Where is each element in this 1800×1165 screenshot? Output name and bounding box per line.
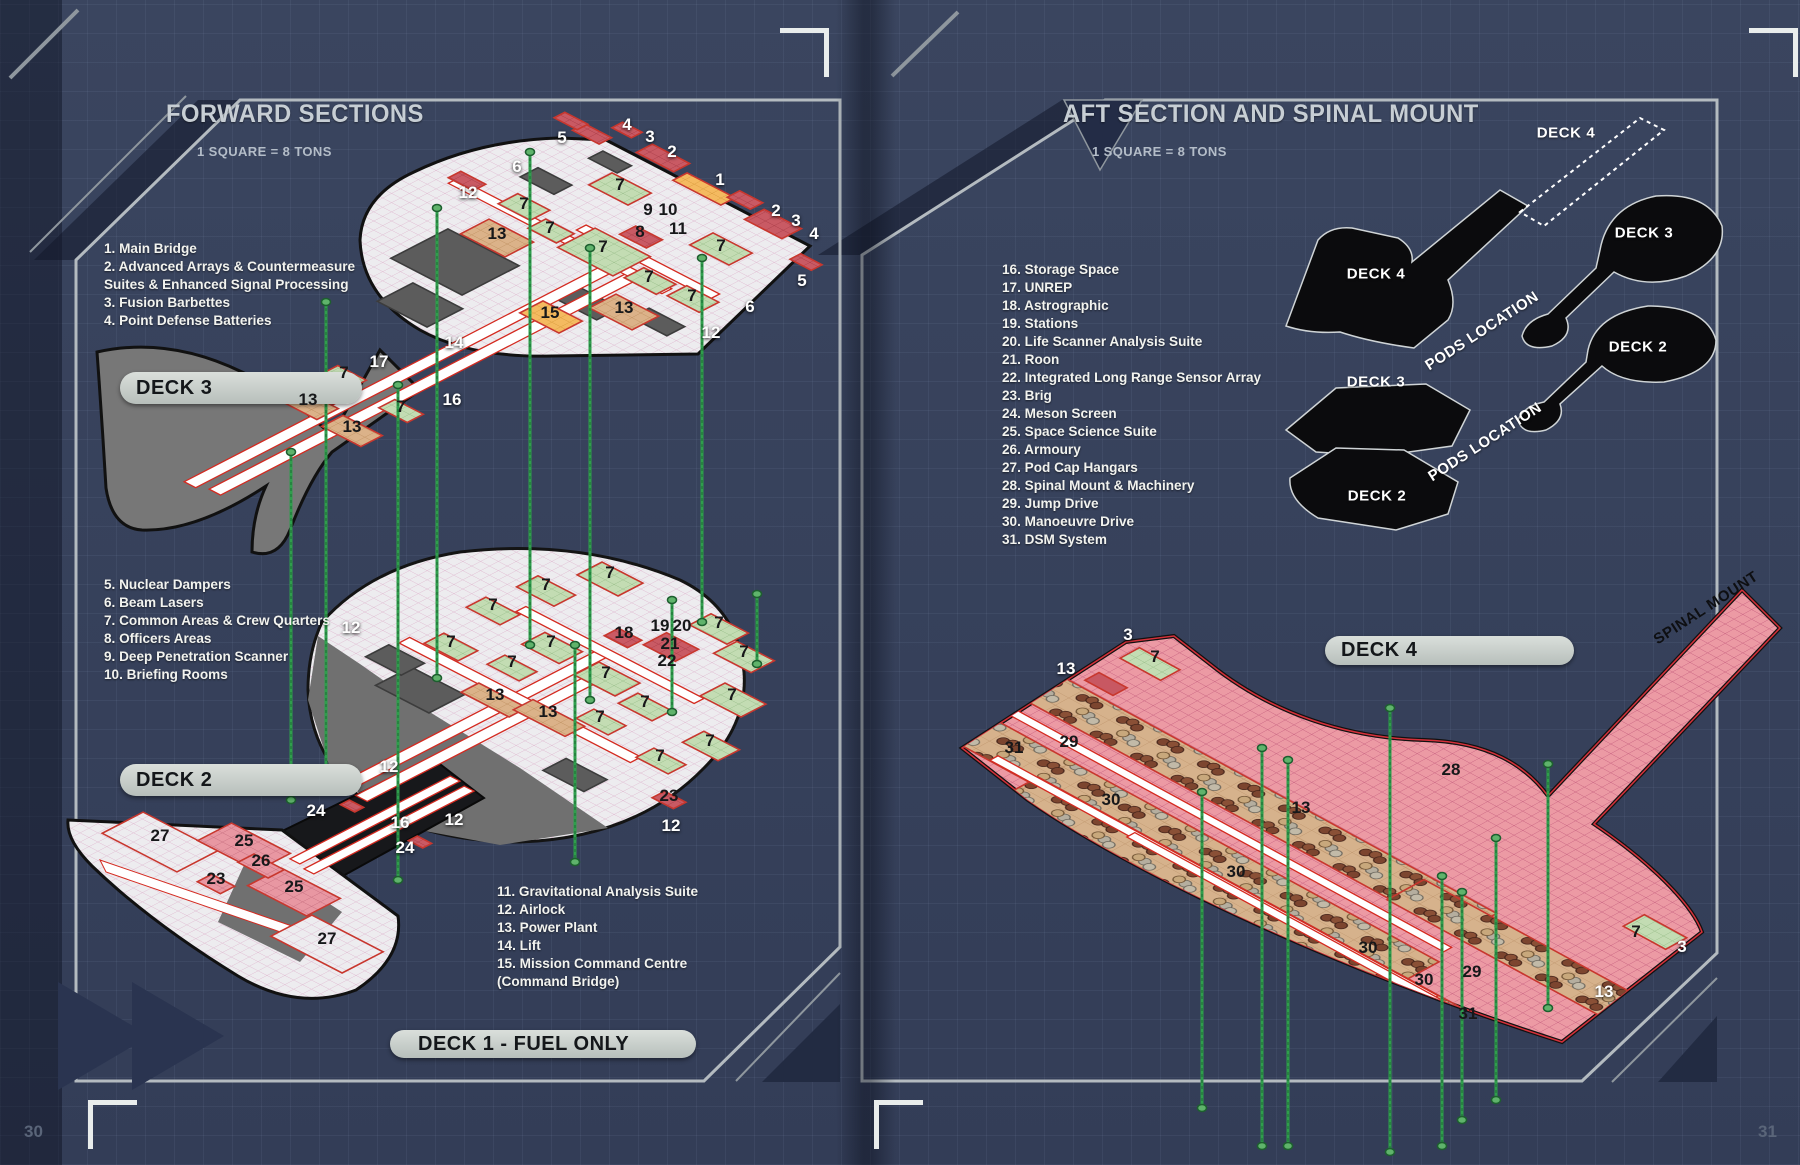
legend-item: 21. Roon xyxy=(1002,350,1261,368)
legend-item: 29. Jump Drive xyxy=(1002,494,1261,512)
room-number-label: 5 xyxy=(797,271,806,291)
room-number-label: 30 xyxy=(1102,790,1121,810)
legend-item: 5. Nuclear Dampers xyxy=(104,575,330,593)
room-number-label: 20 xyxy=(673,616,692,636)
lift-hatch-dot-icon xyxy=(526,149,535,156)
room-number-label: 7 xyxy=(507,652,516,672)
room-number-label: 7 xyxy=(595,707,604,727)
legend-item: 23. Brig xyxy=(1002,386,1261,404)
room-number-label: 26 xyxy=(252,851,271,871)
room-number-label: 9 xyxy=(643,200,652,220)
room-number-label: 16 xyxy=(391,813,410,833)
lift-hatch-dot-icon xyxy=(394,877,403,884)
room-number-label: 7 xyxy=(339,363,348,383)
page-number-left: 30 xyxy=(24,1122,43,1142)
room-number-label: 13 xyxy=(1292,798,1311,818)
deck1-banner-label: DECK 1 - FUEL ONLY xyxy=(418,1033,629,1056)
legend-item: 12. Airlock xyxy=(497,900,698,918)
deck4-silhouette-label: DECK 4 xyxy=(1347,266,1406,283)
room-number-label: 12 xyxy=(445,810,464,830)
room-number-label: 10 xyxy=(659,200,678,220)
corner-bracket-icon xyxy=(780,28,829,77)
room-number-label: 7 xyxy=(714,613,723,633)
legend-item: 16. Storage Space xyxy=(1002,260,1261,278)
legend-item: 22. Integrated Long Range Sensor Array xyxy=(1002,368,1261,386)
lift-hatch-dot-icon xyxy=(1198,789,1207,796)
room-number-label: 27 xyxy=(318,929,337,949)
room-number-label: 19 xyxy=(651,616,670,636)
legend-item: 28. Spinal Mount & Machinery xyxy=(1002,476,1261,494)
deck3-banner: DECK 3 xyxy=(120,372,362,404)
corner-bracket-icon xyxy=(88,1100,137,1149)
lift-hatch-dot-icon xyxy=(1284,1143,1293,1150)
deck3-silhouette-label-left: DECK 3 xyxy=(1347,374,1406,391)
page-gutter xyxy=(836,0,896,1165)
lift-hatch-dot-icon xyxy=(586,245,595,252)
legend-item: 11. Gravitational Analysis Suite xyxy=(497,882,698,900)
room-number-label: 23 xyxy=(207,869,226,889)
room-number-label: 31 xyxy=(1005,738,1024,758)
scale-note-right: 1 SQUARE = 8 TONS xyxy=(1092,144,1227,159)
page-title-right: AFT SECTION AND SPINAL MOUNT xyxy=(1063,100,1479,129)
lift-hatch-dot-icon xyxy=(1386,1149,1395,1156)
lift-hatch-dot-icon xyxy=(1544,1005,1553,1012)
room-number-label: 6 xyxy=(745,297,754,317)
lift-hatch-dot-icon xyxy=(571,859,580,866)
room-number-label: 4 xyxy=(809,224,818,244)
room-number-label: 13 xyxy=(539,702,558,722)
legend-item: 15. Mission Command Centre xyxy=(497,954,698,972)
room-number-label: 7 xyxy=(615,175,624,195)
deck2-banner-label: DECK 2 xyxy=(136,769,212,792)
room-number-label: 2 xyxy=(771,201,780,221)
lift-hatch-dot-icon xyxy=(1492,835,1501,842)
room-number-label: 25 xyxy=(285,877,304,897)
lift-hatch-dot-icon xyxy=(1258,745,1267,752)
lift-hatch-dot-icon xyxy=(1386,705,1395,712)
legend-item: 24. Meson Screen xyxy=(1002,404,1261,422)
lift-hatch-dot-icon xyxy=(433,205,442,212)
room-number-label: 7 xyxy=(739,642,748,662)
legend-item: 14. Lift xyxy=(497,936,698,954)
room-number-label: 31 xyxy=(1459,1004,1478,1024)
legend-item: 9. Deep Penetration Scanner xyxy=(104,647,330,665)
lift-hatch-dot-icon xyxy=(753,591,762,598)
lift-hatch-dot-icon xyxy=(287,797,296,804)
room-number-label: 12 xyxy=(662,816,681,836)
room-number-label: 11 xyxy=(669,219,687,239)
room-number-label: 7 xyxy=(488,595,497,615)
room-number-label: 14 xyxy=(445,333,464,353)
legend-item: 13. Power Plant xyxy=(497,918,698,936)
legend-item: 2. Advanced Arrays & Countermeasure xyxy=(104,257,355,275)
deck2-banner: DECK 2 xyxy=(120,764,362,796)
room-number-label: 7 xyxy=(446,632,455,652)
lift-hatch-dot-icon xyxy=(1438,1143,1447,1150)
room-number-label: 25 xyxy=(235,831,254,851)
lift-hatch-dot-icon xyxy=(433,675,442,682)
deck4-banner-label: DECK 4 xyxy=(1341,639,1417,662)
lift-hatch-dot-icon xyxy=(1458,1117,1467,1124)
corner-bracket-icon xyxy=(874,1100,923,1149)
room-number-label: 7 xyxy=(705,731,714,751)
page-number-right: 31 xyxy=(1758,1122,1777,1142)
lift-hatch-dot-icon xyxy=(668,709,677,716)
lift-hatch-dot-icon xyxy=(287,449,296,456)
room-number-label: 7 xyxy=(727,685,736,705)
room-number-label: 8 xyxy=(635,222,644,242)
legend-item: 25. Space Science Suite xyxy=(1002,422,1261,440)
room-number-label: 7 xyxy=(396,397,405,417)
room-number-label: 7 xyxy=(644,267,653,287)
book-spread: FORWARD SECTIONS 1 SQUARE = 8 TONS 1. Ma… xyxy=(0,0,1800,1165)
legend-item: 4. Point Defense Batteries xyxy=(104,311,355,329)
room-number-label: 4 xyxy=(622,115,631,135)
room-number-label: 12 xyxy=(459,183,478,203)
room-number-label: 29 xyxy=(1463,962,1482,982)
room-number-label: 3 xyxy=(1123,625,1132,645)
legend-item: 20. Life Scanner Analysis Suite xyxy=(1002,332,1261,350)
room-number-label: 30 xyxy=(1415,970,1434,990)
room-number-label: 13 xyxy=(486,685,505,705)
room-number-label: 27 xyxy=(151,826,170,846)
room-number-label: 7 xyxy=(605,563,614,583)
room-number-label: 24 xyxy=(307,801,326,821)
room-number-label: 6 xyxy=(512,157,521,177)
lift-hatch-dot-icon xyxy=(1458,889,1467,896)
lift-hatch-dot-icon xyxy=(753,661,762,668)
room-number-label: 7 xyxy=(640,692,649,712)
room-number-label: 12 xyxy=(380,757,399,777)
room-number-label: 29 xyxy=(1060,732,1079,752)
legend-item: 17. UNREP xyxy=(1002,278,1261,296)
chevron-decor-icon xyxy=(132,982,224,1090)
room-number-label: 7 xyxy=(655,746,664,766)
room-number-label: 13 xyxy=(615,298,634,318)
room-number-label: 15 xyxy=(541,303,560,323)
lift-hatch-dot-icon xyxy=(698,255,707,262)
lift-hatch-dot-icon xyxy=(698,619,707,626)
legend-item: 10. Briefing Rooms xyxy=(104,665,330,683)
room-number-label: 24 xyxy=(396,838,415,858)
legend-item: 19. Stations xyxy=(1002,314,1261,332)
legend-item: 8. Officers Areas xyxy=(104,629,330,647)
deck4-banner: DECK 4 xyxy=(1325,636,1574,665)
lift-hatch-dot-icon xyxy=(586,697,595,704)
deck4-dotted-label: DECK 4 xyxy=(1537,125,1596,142)
room-number-label: 7 xyxy=(716,236,725,256)
room-number-label: 3 xyxy=(1677,937,1686,957)
room-number-label: 18 xyxy=(615,623,634,643)
room-number-label: 5 xyxy=(557,128,566,148)
legend-item: 6. Beam Lasers xyxy=(104,593,330,611)
lift-hatch-dot-icon xyxy=(1544,761,1553,768)
deck1-banner: DECK 1 - FUEL ONLY xyxy=(390,1030,696,1058)
room-number-label: 12 xyxy=(342,618,361,638)
legend-group-3: 11. Gravitational Analysis Suite12. Airl… xyxy=(497,882,698,990)
legend-item: 30. Manoeuvre Drive xyxy=(1002,512,1261,530)
lift-hatch-dot-icon xyxy=(1492,1097,1501,1104)
legend-item: (Command Bridge) xyxy=(497,972,698,990)
room-number-label: 13 xyxy=(343,417,362,437)
room-number-label: 13 xyxy=(1057,659,1076,679)
room-number-label: 12 xyxy=(702,323,721,343)
deck3-silhouette-left xyxy=(1286,384,1470,456)
legend-item: 31. DSM System xyxy=(1002,530,1261,548)
room-number-label: 7 xyxy=(546,632,555,652)
lift-hatch-dot-icon xyxy=(526,642,535,649)
room-number-label: 28 xyxy=(1442,760,1461,780)
room-number-label: 7 xyxy=(1150,647,1159,667)
room-number-label: 23 xyxy=(660,786,679,806)
room-number-label: 30 xyxy=(1359,938,1378,958)
room-number-label: 22 xyxy=(658,651,677,671)
lift-hatch-dot-icon xyxy=(571,642,580,649)
legend-group-1: 1. Main Bridge2. Advanced Arrays & Count… xyxy=(104,239,355,329)
lift-hatch-dot-icon xyxy=(1438,873,1447,880)
lift-hatch-dot-icon xyxy=(394,382,403,389)
legend-item: 7. Common Areas & Crew Quarters xyxy=(104,611,330,629)
legend-item: 18. Astrographic xyxy=(1002,296,1261,314)
room-number-label: 7 xyxy=(1631,922,1640,942)
room-number-label: 7 xyxy=(598,237,607,257)
room-number-label: 1 xyxy=(715,170,724,190)
legend-group-2: 5. Nuclear Dampers6. Beam Lasers7. Commo… xyxy=(104,575,330,683)
legend-item: 27. Pod Cap Hangars xyxy=(1002,458,1261,476)
deck3-silhouette-label-right: DECK 3 xyxy=(1615,225,1674,242)
legend-item: 26. Armoury xyxy=(1002,440,1261,458)
page-title: FORWARD SECTIONS xyxy=(166,100,424,129)
deck2-silhouette-label-left: DECK 2 xyxy=(1348,488,1407,505)
lift-hatch-dot-icon xyxy=(1258,1143,1267,1150)
room-number-label: 7 xyxy=(541,575,550,595)
room-number-label: 7 xyxy=(687,286,696,306)
legend-item: 3. Fusion Barbettes xyxy=(104,293,355,311)
deck2-silhouette-label-right: DECK 2 xyxy=(1609,339,1668,356)
lift-hatch-dot-icon xyxy=(1198,1105,1207,1112)
room-number-label: 7 xyxy=(545,218,554,238)
room-number-label: 3 xyxy=(645,127,654,147)
deck3-banner-label: DECK 3 xyxy=(136,377,212,400)
room-number-label: 3 xyxy=(791,211,800,231)
room-number-label: 16 xyxy=(443,390,462,410)
legend-group-4: 16. Storage Space17. UNREP18. Astrograph… xyxy=(1002,260,1261,548)
lift-hatch-dot-icon xyxy=(668,597,677,604)
room-number-label: 13 xyxy=(488,224,507,244)
lift-hatch-dot-icon xyxy=(1284,757,1293,764)
room-number-label: 30 xyxy=(1227,862,1246,882)
room-number-label: 17 xyxy=(370,352,389,372)
room-polygon xyxy=(790,254,822,271)
room-number-label: 13 xyxy=(1595,982,1614,1002)
corner-bracket-icon xyxy=(1749,28,1798,77)
legend-item: 1. Main Bridge xyxy=(104,239,355,257)
room-number-label: 7 xyxy=(601,663,610,683)
legend-item: Suites & Enhanced Signal Processing xyxy=(104,275,355,293)
room-number-label: 13 xyxy=(299,390,318,410)
room-number-label: 7 xyxy=(519,194,528,214)
scale-note: 1 SQUARE = 8 TONS xyxy=(197,144,332,159)
room-number-label: 2 xyxy=(667,142,676,162)
